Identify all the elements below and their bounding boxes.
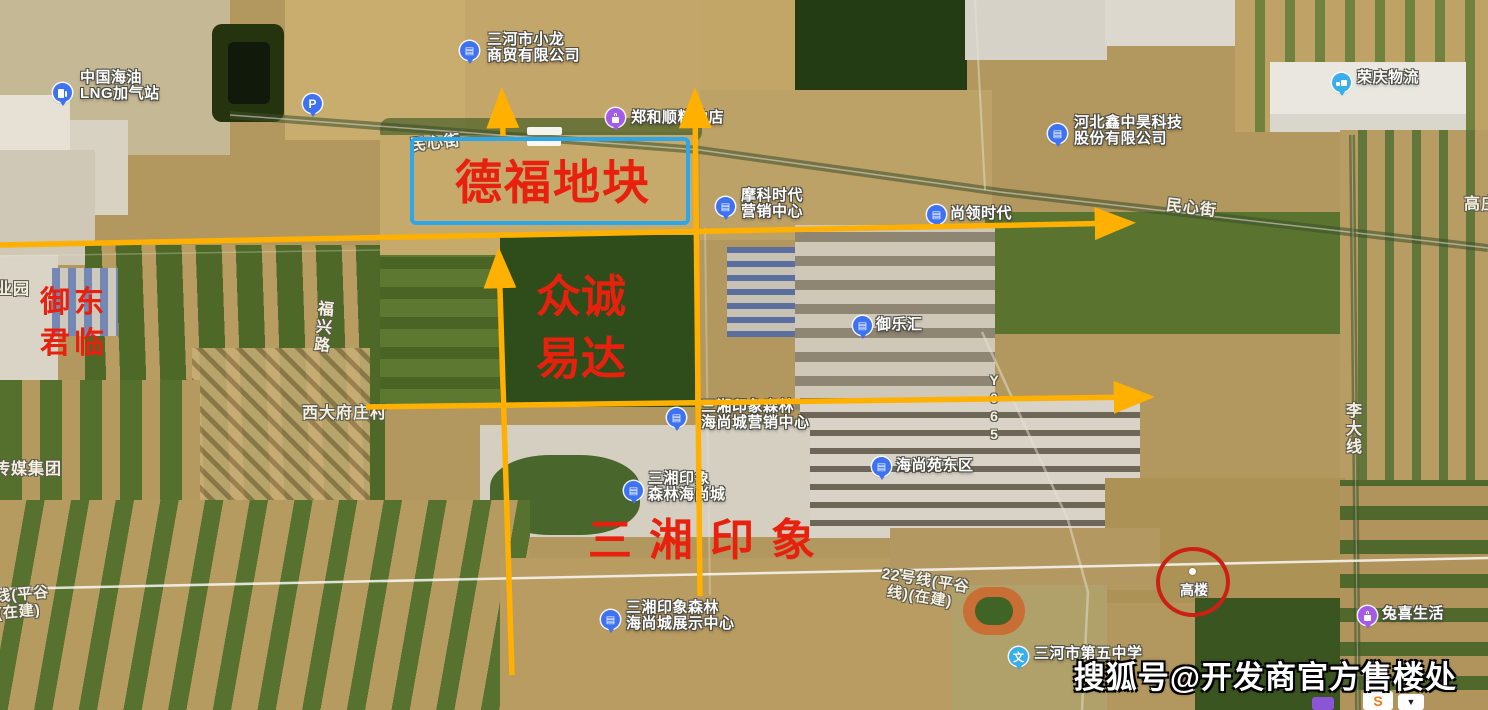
- sanxiang-big-label: 三湘印象: [588, 518, 832, 564]
- yudong-junlin-label: 御东 君临: [40, 282, 108, 364]
- annotation-arrows: [0, 0, 1488, 710]
- arrow-horizontal-top: [0, 223, 1125, 245]
- defu-plot-label: 德福地块: [455, 158, 651, 207]
- satellite-map-canvas: 中国海油LNG加气站 三河市小龙商贸有限公司 郑和顺粮油店 摩科时代营销中心 尚…: [0, 0, 1488, 710]
- cut-purple-icon[interactable]: [1312, 697, 1334, 710]
- arrow-horizontal-mid: [366, 397, 1144, 407]
- zhongcheng-yida-label: 众诚 易达: [536, 266, 626, 390]
- sohu-watermark: 搜狐号@开发商官方售楼处: [1074, 652, 1457, 697]
- gaolou-dot: [1189, 568, 1196, 575]
- arrow-vertical-short: [502, 98, 503, 136]
- gaolou-label: 高楼: [1172, 580, 1216, 600]
- arrow-vertical-left: [499, 258, 512, 675]
